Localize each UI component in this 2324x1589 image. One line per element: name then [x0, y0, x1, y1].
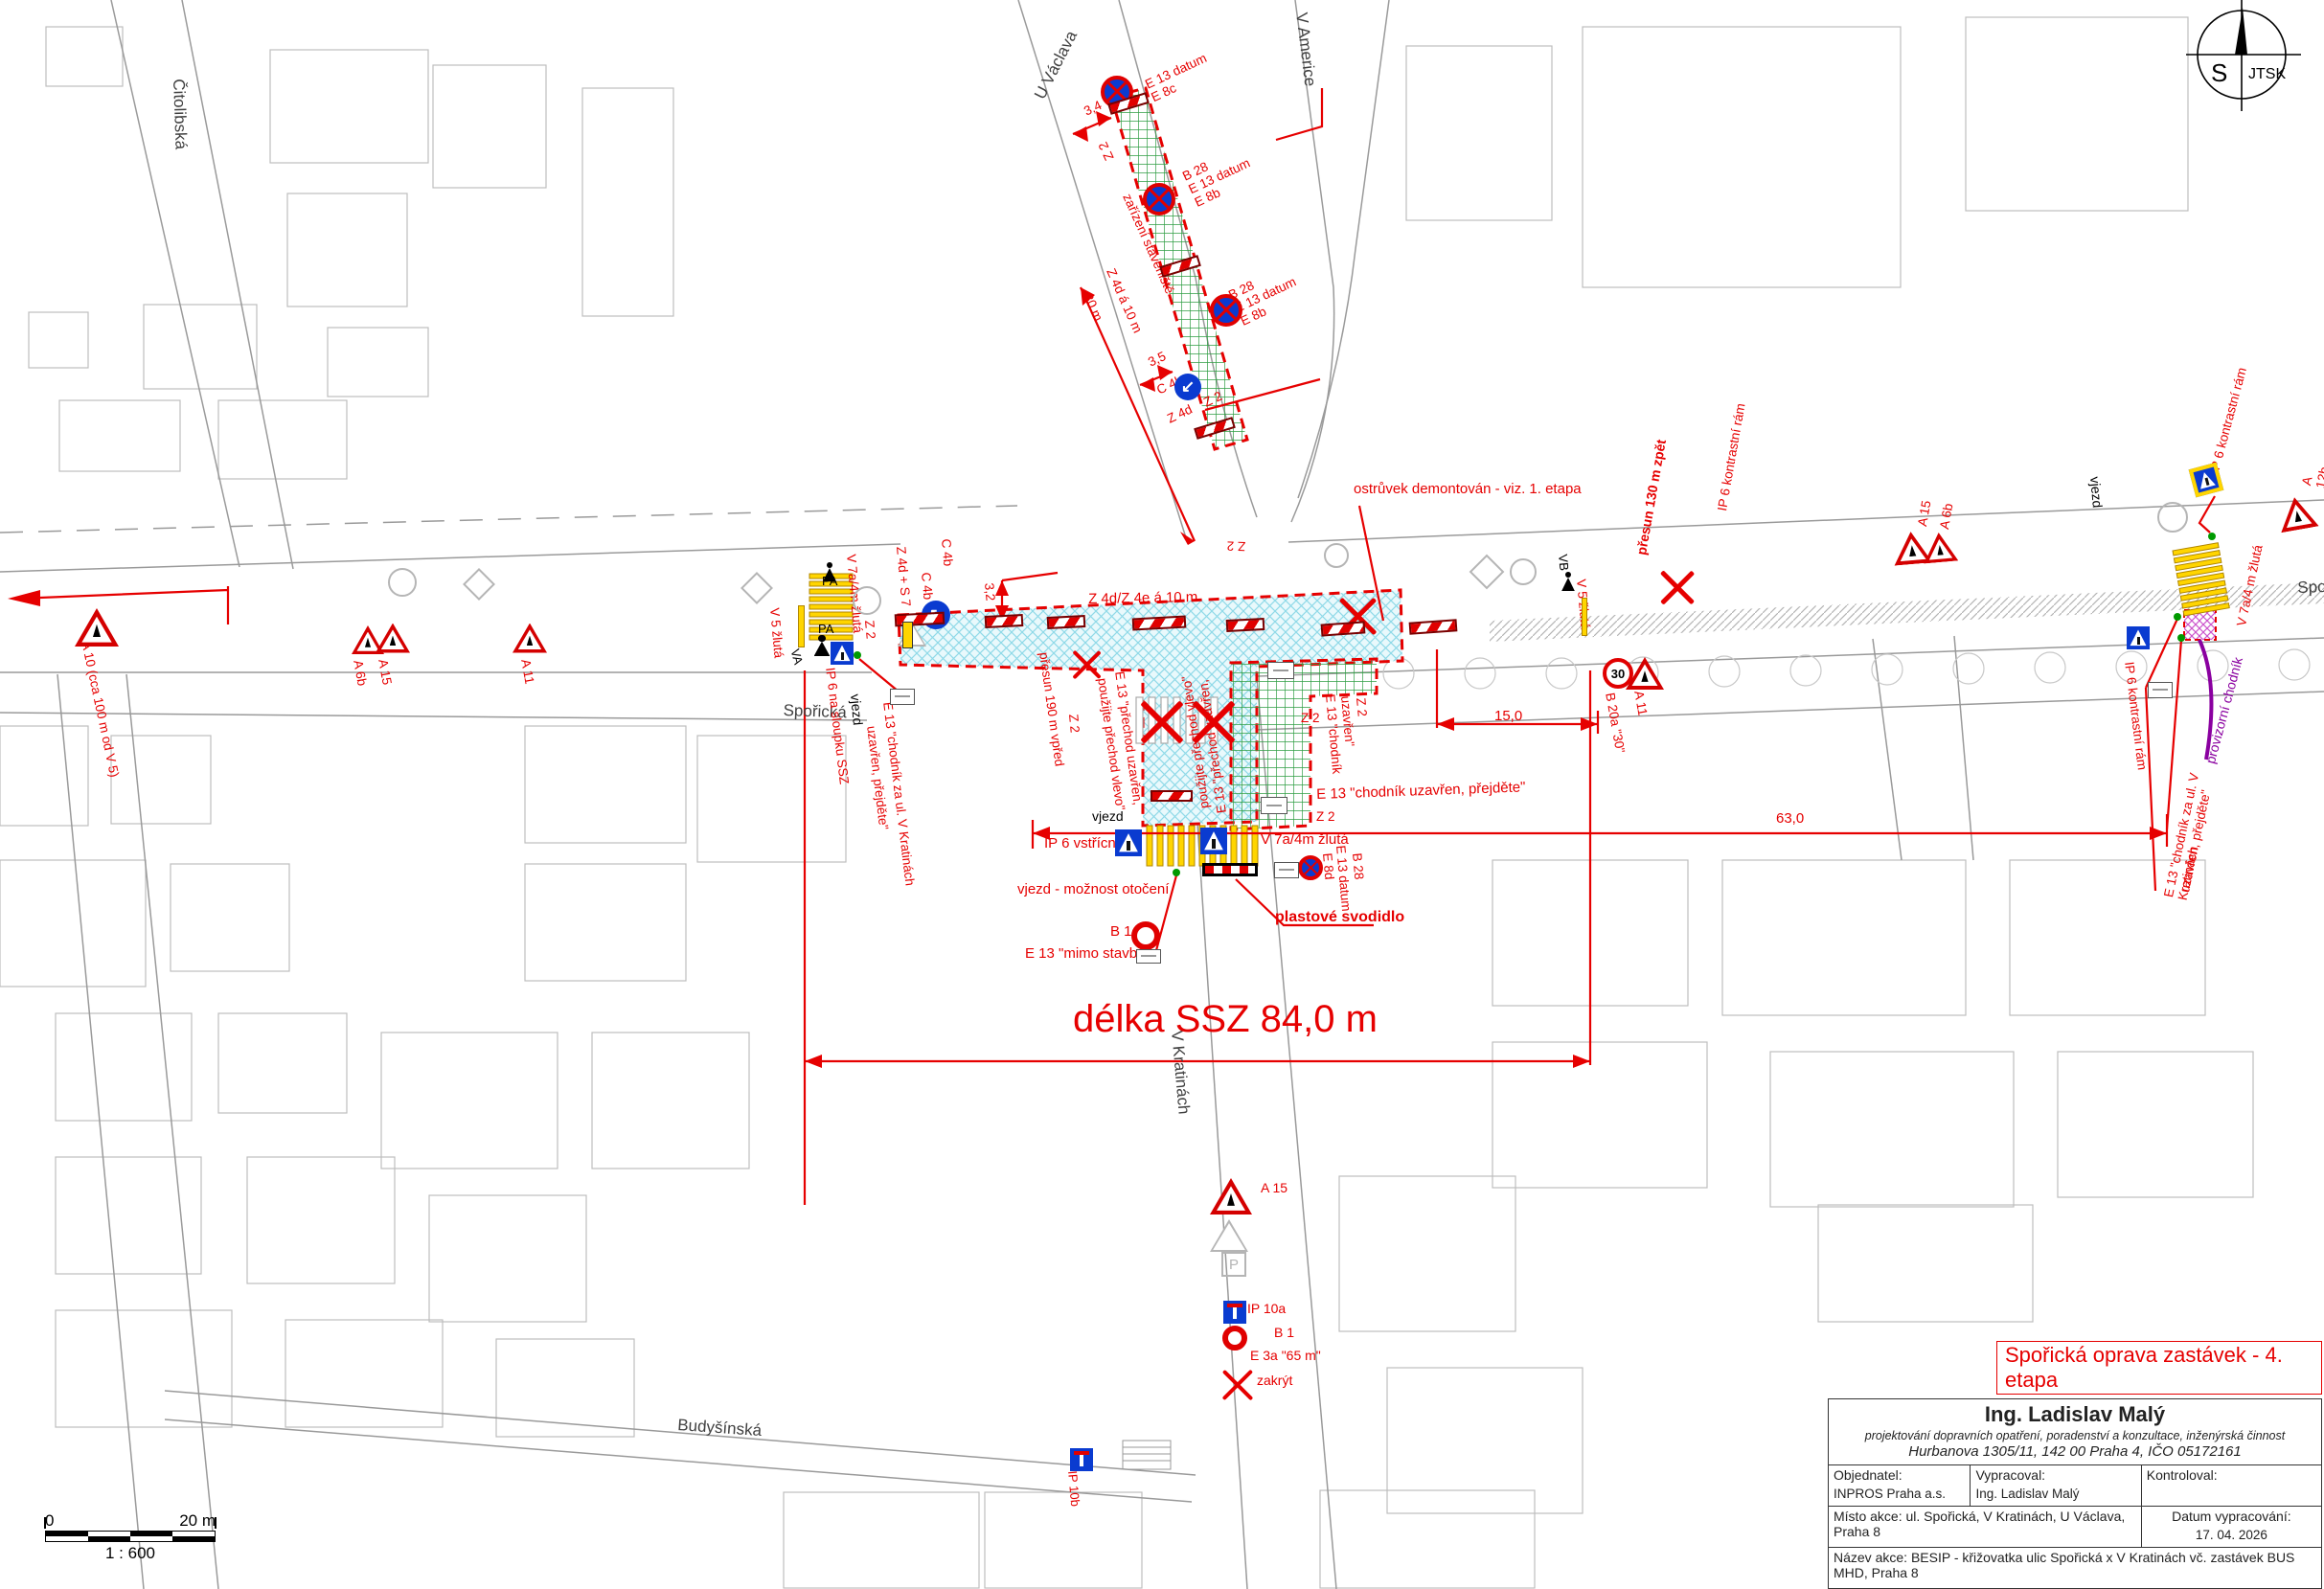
- existing-sign-4: [2157, 502, 2188, 533]
- no-stopping-sign-2: [1143, 183, 1175, 216]
- ladder-crossing: [1123, 1441, 1171, 1469]
- scale-bar: 0 20 m 1 : 600: [45, 1511, 216, 1563]
- barrier-z2-2: [985, 613, 1024, 627]
- no-stopping-sign-3: [1210, 294, 1242, 327]
- c4b-arrow-sign-2: ↙: [1174, 374, 1201, 400]
- speed-30-sign: 30: [1603, 658, 1633, 689]
- date-cell: Datum vypracování: 17. 04. 2026: [2141, 1507, 2321, 1547]
- dead-end-sign-2: [1070, 1448, 1093, 1471]
- removed-x-6: [1220, 1368, 1255, 1402]
- signal-dot-3: [2208, 533, 2216, 540]
- red-arrowheads: [8, 111, 2167, 1068]
- barrier-z2-7: [1409, 619, 1458, 634]
- author-cell: Vypracoval: Ing. Ladislav Malý: [1970, 1465, 2140, 1506]
- e13-plate-6: [1136, 949, 1161, 964]
- dim-63-0: 63,0: [1776, 811, 1804, 828]
- title-block: Spořická oprava zastávek - 4. etapa Ing.…: [1828, 1341, 2322, 1589]
- note-vjezd-otoceni: vjezd - možnost otočení: [1017, 882, 1169, 898]
- scale-zero-label: 0: [45, 1511, 54, 1531]
- crossing-sign-1: [831, 642, 854, 665]
- e13-plate-1: [890, 689, 915, 705]
- note-e3a: E 3a "65 m": [1250, 1349, 1321, 1364]
- compass-icon: S JTSK: [2184, 0, 2304, 120]
- traffic-plan-canvas: S JTSK ČitolibskáU VáclavaV AmericeSpoři…: [0, 0, 2324, 1589]
- signal-heads-icon: [902, 622, 913, 648]
- pedestrian-icon-1: [821, 562, 838, 581]
- v5-stopline-right: [1582, 598, 1587, 636]
- note-c4b-l2: C 4b: [919, 572, 936, 601]
- designer-description: projektování dopravních opatření, porade…: [1833, 1429, 2317, 1442]
- existing-parking-sign: P: [1221, 1252, 1246, 1277]
- removed-x-2: [1658, 568, 1697, 606]
- compass-grid-label: JTSK: [2248, 66, 2286, 82]
- barrier-z2-5: [1226, 617, 1265, 631]
- action-label: Název akce:: [1834, 1550, 1907, 1565]
- existing-sign-5: [1324, 543, 1349, 568]
- note-ip10a: IP 10a: [1247, 1302, 1286, 1317]
- author-label: Vypracoval:: [1975, 1467, 2135, 1483]
- note-delka-ssz: délka SSZ 84,0 m: [1073, 998, 1378, 1041]
- pedestrian-icon-2: [811, 635, 832, 656]
- barrier-z2-8: [1151, 790, 1193, 802]
- note-ip10b: IP 10b: [1065, 1470, 1082, 1507]
- note-z4d-z4e: Z 4d/Z 4e á 10 m: [1088, 590, 1198, 608]
- v5-stopline-left: [798, 605, 805, 647]
- date-value: 17. 04. 2026: [2147, 1528, 2316, 1542]
- author-value: Ing. Ladislav Malý: [1975, 1487, 2135, 1501]
- place-label: Místo akce:: [1834, 1509, 1902, 1524]
- no-stopping-sign-4: [1298, 855, 1323, 880]
- vjezd-right: vjezd: [2086, 476, 2104, 509]
- removed-x-3: [1071, 648, 1104, 681]
- existing-sign-3: [1510, 558, 1537, 585]
- removed-x-4: [1138, 697, 1186, 745]
- e13-plate-5: [1274, 862, 1299, 878]
- note-a15-bottom: A 15: [1261, 1181, 1287, 1196]
- road-centerline-dashed: [0, 506, 1017, 533]
- e13-plate-3: [1261, 797, 1287, 814]
- note-b28-d1: B 28: [1350, 852, 1366, 880]
- plastic-barrier: [1202, 863, 1258, 876]
- no-entry-sign-2: [1222, 1326, 1247, 1351]
- note-z2-g2: Z 2: [1301, 711, 1320, 725]
- note-b1: B 1: [1110, 924, 1132, 941]
- scale-ratio: 1 : 600: [45, 1544, 216, 1563]
- note-svodidlo: plastové svodidlo: [1275, 909, 1404, 926]
- dim-15-0: 15,0: [1494, 709, 1522, 725]
- signal-dot-2: [1173, 869, 1180, 876]
- pedestrian-icon-3: [1560, 572, 1577, 591]
- signal-vb: VB: [1556, 554, 1571, 572]
- crossing-sign-2: [1115, 829, 1142, 856]
- checker-label: Kontroloval:: [2147, 1467, 2316, 1483]
- note-zakryt: zakrýt: [1257, 1373, 1292, 1389]
- note-b1-bottom: B 1: [1274, 1326, 1294, 1341]
- e13-plate-4: [2148, 682, 2173, 698]
- checker-cell: Kontroloval:: [2141, 1465, 2321, 1506]
- client-label: Objednatel:: [1834, 1467, 1965, 1483]
- removed-x-5: [1190, 697, 1238, 745]
- scale-max-label: 20 m: [179, 1511, 216, 1531]
- vjezd-center: vjezd: [1092, 809, 1124, 825]
- barrier-z2-4: [1132, 615, 1187, 630]
- note-z2-g3: Z 2: [1354, 697, 1370, 717]
- client-value: INPROS Praha a.s.: [1834, 1487, 1965, 1501]
- e13-plate-2: [1267, 662, 1294, 679]
- dim-3-2: 3,2: [982, 582, 998, 602]
- street-citolibska: Čitolibská: [170, 79, 191, 149]
- designer-address: Hurbanova 1305/11, 142 00 Praha 4, IČO 0…: [1833, 1443, 2317, 1460]
- note-e13-mimo: E 13 "mimo stavbu": [1025, 946, 1151, 963]
- street-sporicka-right: Spo: [2297, 578, 2324, 597]
- compass-north-label: S: [2211, 58, 2227, 87]
- note-z2-mirror: Z 2: [1226, 538, 1245, 554]
- crossing-sign-4: [2127, 626, 2150, 649]
- note-ip6-vstricne: IP 6 vstřícně: [1044, 836, 1124, 852]
- designer-name: Ing. Ladislav Malý: [1833, 1402, 2317, 1427]
- barrier-z2-3: [1047, 614, 1086, 628]
- no-entry-sign-1: [1131, 921, 1160, 950]
- crossing-sign-3: [1200, 828, 1227, 854]
- existing-sign-1: [388, 568, 417, 597]
- date-label: Datum vypracování:: [2147, 1509, 2316, 1524]
- note-ostruvek: ostrůvek demontován - viz. 1. etapa: [1354, 482, 1582, 498]
- client-cell: Objednatel: INPROS Praha a.s.: [1829, 1465, 1970, 1506]
- stage-label: Spořická oprava zastávek - 4. etapa: [1996, 1341, 2322, 1395]
- signal-dot-1: [854, 651, 861, 659]
- signal-dot-4: [2174, 613, 2181, 621]
- existing-sign-2: [853, 586, 881, 615]
- note-c4b-l1: C 4b: [939, 538, 956, 567]
- signal-dot-5: [2177, 634, 2185, 642]
- action-cell: Název akce: BESIP - křižovatka ulic Spoř…: [1829, 1548, 2321, 1588]
- scale-bar-graphic: [45, 1531, 216, 1542]
- place-cell: Místo akce: ul. Spořická, V Kratinách, U…: [1829, 1507, 2141, 1547]
- dead-end-sign-1: [1223, 1301, 1246, 1324]
- note-z2-g1: Z 2: [1316, 809, 1335, 824]
- barrier-z2-6: [1321, 621, 1366, 636]
- note-z2-pocket: Z 2: [1066, 714, 1082, 734]
- vjezd-left: vjezd: [847, 693, 864, 726]
